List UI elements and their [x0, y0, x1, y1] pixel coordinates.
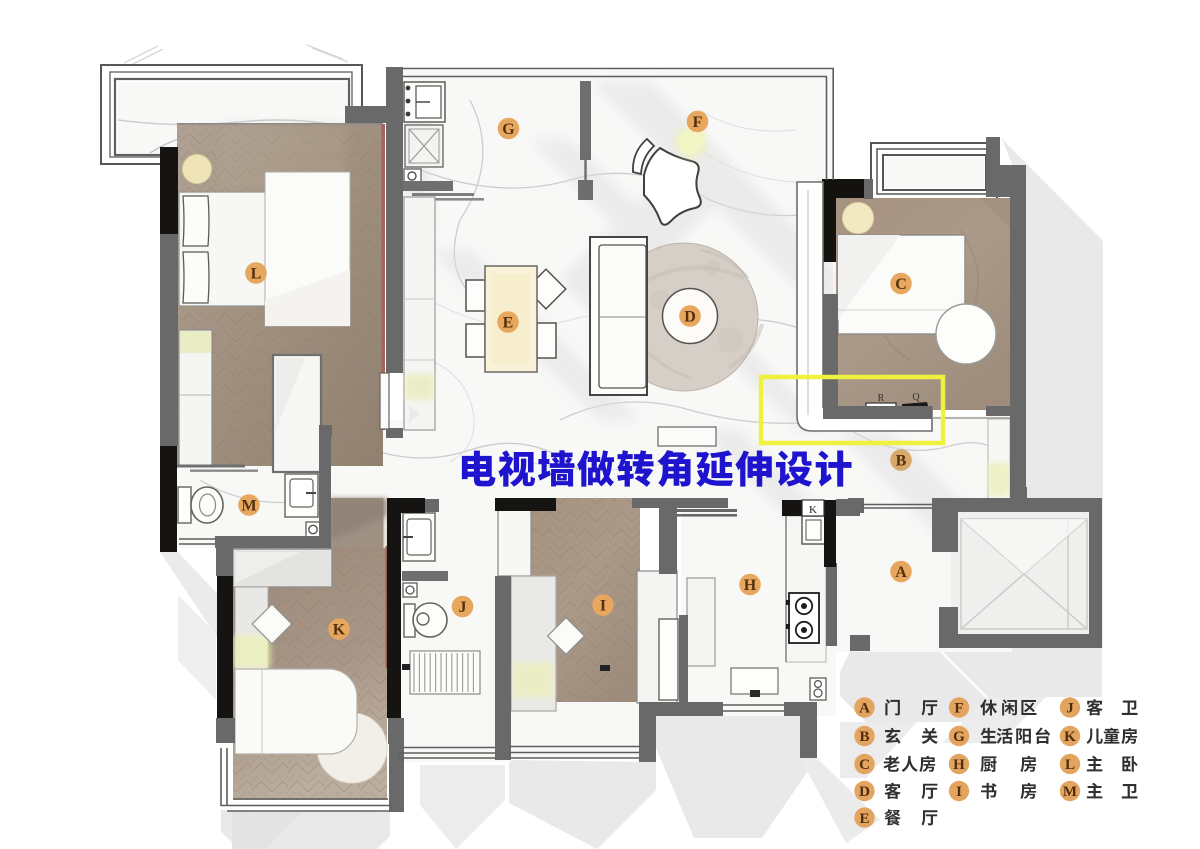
svg-text:E: E [859, 811, 869, 827]
svg-text:K: K [1064, 729, 1076, 745]
svg-text:D: D [859, 784, 870, 800]
svg-text:F: F [954, 701, 963, 717]
svg-text:C: C [859, 757, 870, 773]
svg-text:J: J [1066, 701, 1074, 717]
svg-text:K: K [809, 504, 817, 516]
svg-text:I: I [600, 598, 606, 615]
svg-text:Q: Q [912, 392, 920, 403]
svg-text:F: F [693, 114, 703, 131]
svg-text:K: K [333, 622, 346, 639]
svg-text:G: G [953, 729, 965, 745]
svg-text:M: M [1063, 784, 1077, 800]
svg-text:R: R [878, 393, 885, 404]
svg-text:B: B [896, 453, 907, 470]
svg-text:I: I [956, 784, 962, 800]
svg-text:G: G [502, 121, 515, 138]
svg-text:C: C [895, 276, 907, 293]
svg-text:E: E [503, 315, 514, 332]
svg-text:A: A [859, 701, 870, 717]
svg-text:J: J [459, 599, 467, 616]
svg-text:A: A [895, 564, 907, 581]
svg-text:B: B [859, 729, 869, 745]
svg-text:D: D [684, 309, 696, 326]
svg-text:M: M [241, 498, 256, 515]
svg-text:L: L [251, 266, 262, 283]
svg-text:H: H [953, 757, 965, 773]
svg-text:H: H [744, 577, 757, 594]
svg-text:L: L [1065, 757, 1075, 773]
